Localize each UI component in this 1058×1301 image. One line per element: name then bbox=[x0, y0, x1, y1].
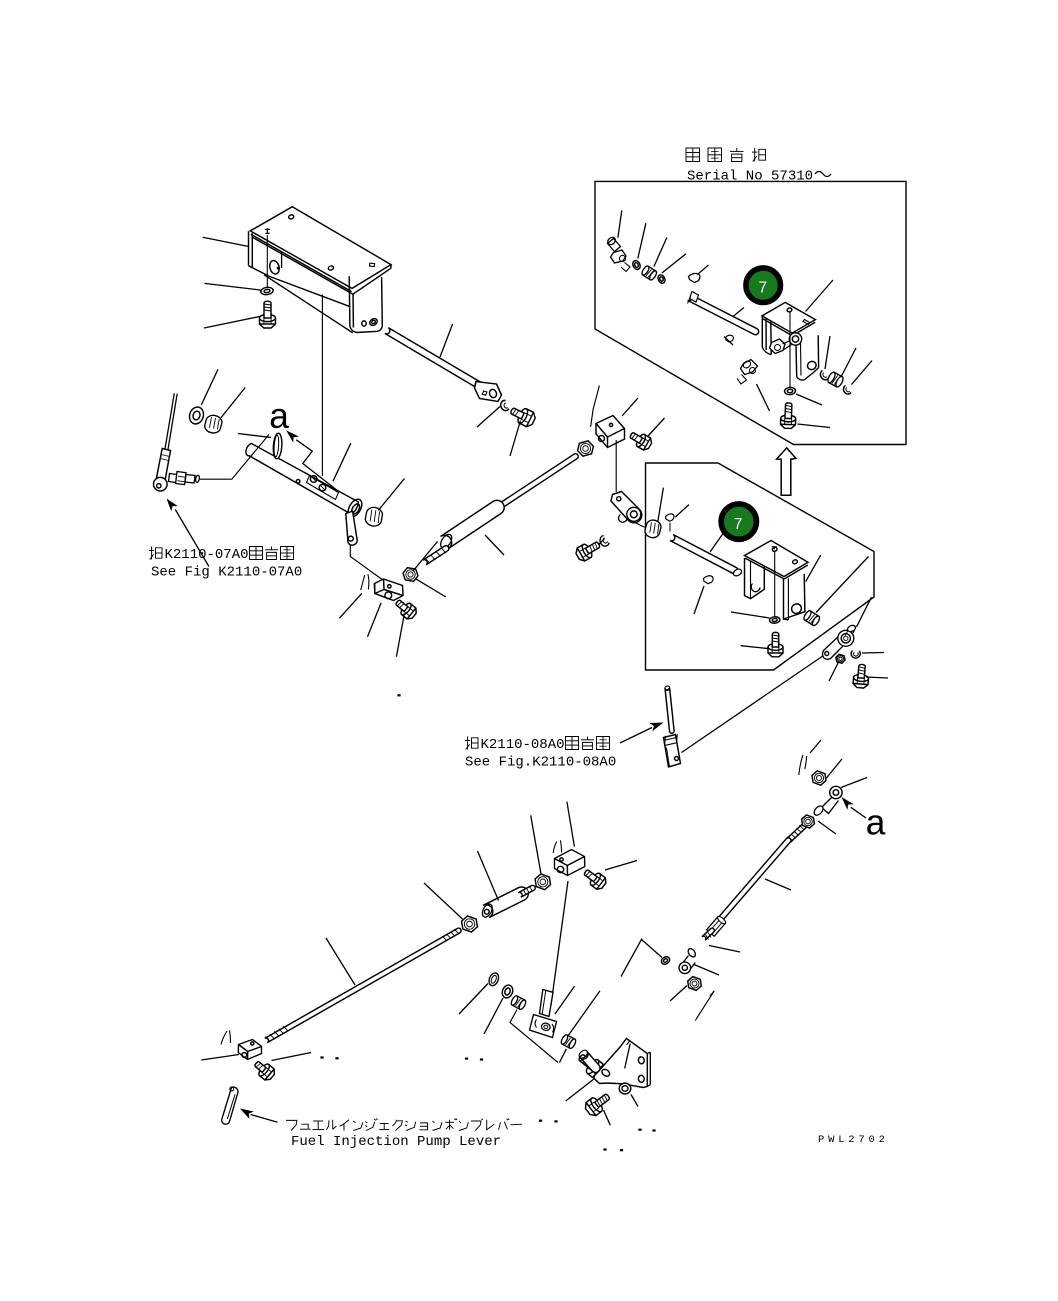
svg-text:a: a bbox=[269, 398, 291, 439]
svg-text:a: a bbox=[865, 805, 887, 846]
svg-text:Serial No 57310: Serial No 57310 bbox=[687, 169, 813, 185]
svg-text:K2110-07A0: K2110-07A0 bbox=[165, 547, 249, 563]
svg-text:7: 7 bbox=[734, 516, 743, 533]
svg-text:K2110-08A0: K2110-08A0 bbox=[481, 737, 565, 753]
svg-text:See Fig K2110-07A0: See Fig K2110-07A0 bbox=[151, 565, 302, 581]
svg-text:7: 7 bbox=[759, 280, 768, 297]
svg-text:PWL2702: PWL2702 bbox=[818, 1134, 889, 1146]
svg-text:See Fig.K2110-08A0: See Fig.K2110-08A0 bbox=[465, 755, 616, 771]
svg-text:Fuel Injection Pump Lever: Fuel Injection Pump Lever bbox=[291, 1134, 501, 1150]
